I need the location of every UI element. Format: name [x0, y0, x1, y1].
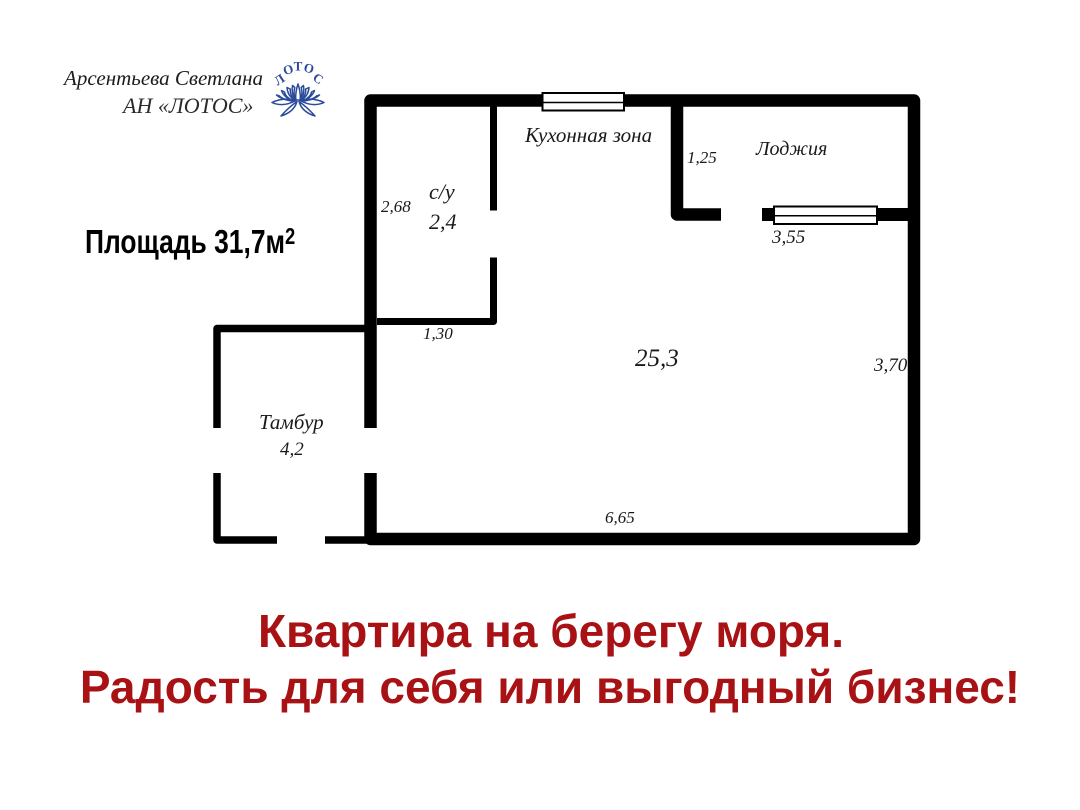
svg-text:6,65: 6,65 — [605, 508, 635, 527]
svg-text:2,68: 2,68 — [381, 197, 411, 216]
svg-text:1,30: 1,30 — [423, 324, 453, 343]
svg-text:2,4: 2,4 — [429, 209, 457, 234]
svg-text:3,55: 3,55 — [771, 227, 805, 248]
svg-text:Лоджия: Лоджия — [755, 138, 827, 160]
svg-text:3,70: 3,70 — [873, 355, 908, 376]
svg-text:25,3: 25,3 — [635, 345, 679, 372]
svg-text:4,2: 4,2 — [280, 439, 304, 460]
svg-text:Кухонная зона: Кухонная зона — [524, 123, 652, 147]
svg-text:Тамбур: Тамбур — [259, 410, 324, 434]
svg-text:1,25: 1,25 — [687, 148, 717, 167]
svg-text:с/у: с/у — [429, 179, 455, 204]
